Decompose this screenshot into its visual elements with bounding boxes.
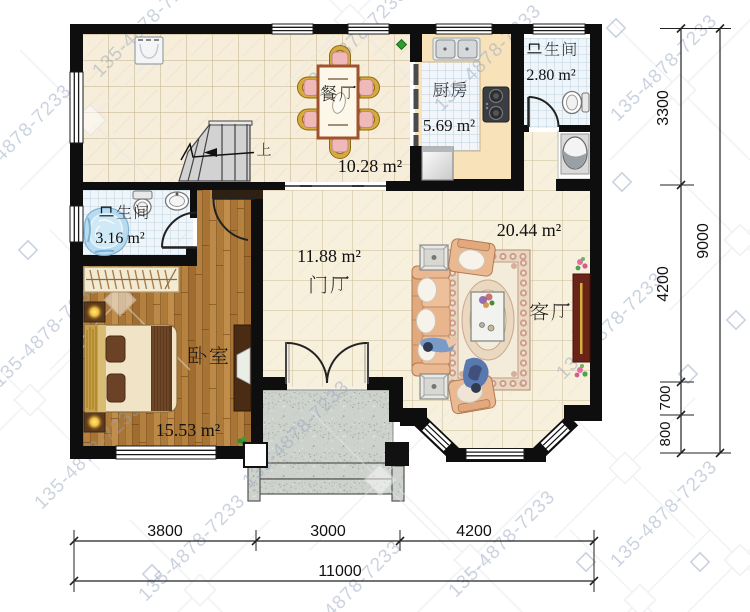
svg-text:700: 700: [657, 385, 674, 410]
svg-text:11000: 11000: [318, 563, 361, 580]
svg-text:10.28 m²: 10.28 m²: [338, 156, 402, 176]
svg-text:20.44 m²: 20.44 m²: [497, 220, 561, 240]
svg-text:15.53 m²: 15.53 m²: [156, 420, 220, 440]
svg-text:5.69 m²: 5.69 m²: [423, 116, 475, 135]
svg-text:3000: 3000: [310, 523, 346, 540]
svg-text:2.80 m²: 2.80 m²: [526, 67, 575, 84]
svg-text:4200: 4200: [456, 523, 492, 540]
svg-text:3.16 m²: 3.16 m²: [95, 230, 144, 247]
svg-text:3300: 3300: [655, 90, 672, 126]
svg-text:11.88 m²: 11.88 m²: [297, 246, 361, 266]
svg-text:4200: 4200: [655, 266, 672, 302]
svg-text:3800: 3800: [147, 523, 183, 540]
svg-text:9000: 9000: [695, 223, 712, 259]
svg-text:800: 800: [657, 421, 674, 446]
